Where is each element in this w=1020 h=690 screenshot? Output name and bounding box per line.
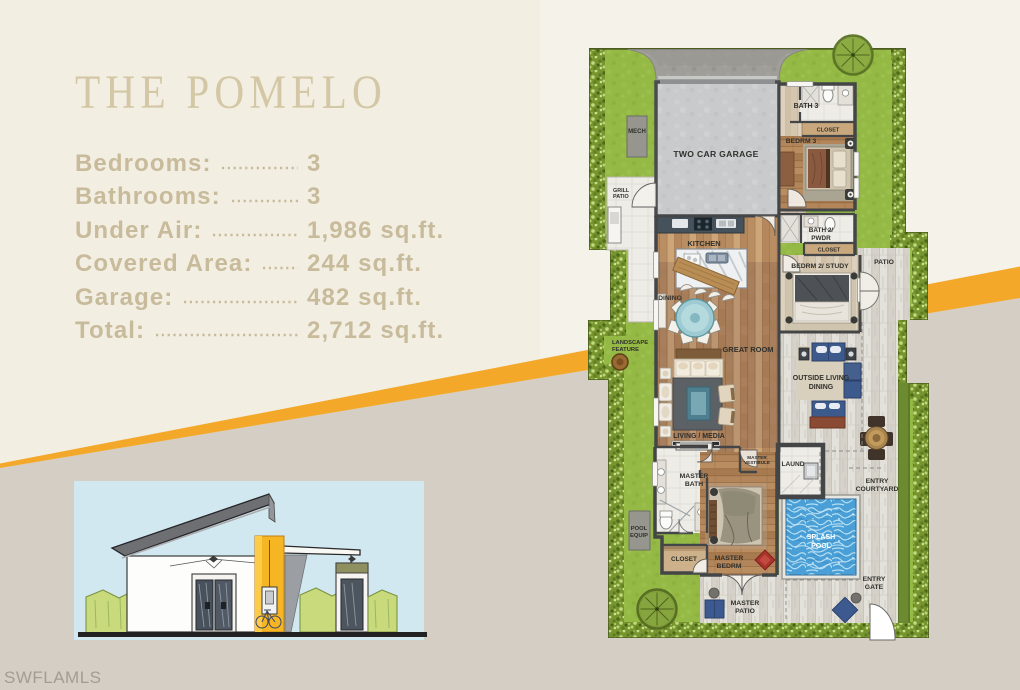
svg-text:CLOSET: CLOSET	[817, 128, 840, 134]
svg-text:BATH 3: BATH 3	[794, 103, 819, 110]
svg-text:3: 3	[307, 183, 321, 210]
svg-text:2,712 sq.ft.: 2,712 sq.ft.	[307, 317, 444, 344]
svg-text:KITCHEN: KITCHEN	[687, 239, 720, 248]
svg-text:SPLASH: SPLASH	[807, 534, 835, 541]
svg-text:ENTRY: ENTRY	[866, 478, 889, 485]
svg-text:PATIO: PATIO	[735, 608, 755, 615]
svg-text:MECH: MECH	[628, 129, 646, 135]
svg-text:ENTRY: ENTRY	[863, 576, 886, 583]
svg-text:SWFLAMLS: SWFLAMLS	[4, 668, 102, 687]
svg-text:Under Air:: Under Air:	[75, 217, 202, 244]
svg-text:BEDRM 3: BEDRM 3	[786, 138, 817, 145]
svg-text:Bedrooms:: Bedrooms:	[75, 150, 212, 177]
svg-text:THE POMELO: THE POMELO	[75, 66, 387, 119]
svg-text:OUTSIDE LIVING: OUTSIDE LIVING	[793, 375, 850, 382]
svg-text:Covered Area:: Covered Area:	[75, 250, 252, 277]
svg-text:PATIO: PATIO	[613, 194, 629, 200]
svg-text:BEDRM 2/ STUDY: BEDRM 2/ STUDY	[791, 263, 849, 270]
svg-text:PWDR: PWDR	[811, 235, 831, 242]
svg-text:LAUND: LAUND	[781, 461, 804, 468]
svg-text:DINING: DINING	[809, 384, 834, 391]
svg-text:244 sq.ft.: 244 sq.ft.	[307, 250, 422, 277]
svg-text:Garage:: Garage:	[75, 284, 173, 311]
svg-text:CLOSET: CLOSET	[818, 248, 841, 254]
svg-text:BEDRM: BEDRM	[717, 563, 742, 570]
svg-text:POOL: POOL	[811, 543, 832, 550]
svg-text:Total:: Total:	[75, 317, 145, 344]
svg-text:PATIO: PATIO	[874, 259, 894, 266]
svg-text:EQUIP: EQUIP	[630, 533, 648, 539]
svg-text:MASTER: MASTER	[680, 473, 709, 480]
svg-text:GATE: GATE	[865, 584, 884, 591]
svg-text:DINING: DINING	[658, 295, 682, 302]
svg-text:CLOSET: CLOSET	[671, 556, 697, 563]
svg-text:Bathrooms:: Bathrooms:	[75, 183, 221, 210]
svg-text:1,986 sq.ft.: 1,986 sq.ft.	[307, 217, 444, 244]
svg-text:482 sq.ft.: 482 sq.ft.	[307, 284, 422, 311]
svg-text:COURTYARD: COURTYARD	[856, 486, 899, 493]
svg-text:TWO CAR GARAGE: TWO CAR GARAGE	[673, 149, 758, 159]
svg-text:MASTER: MASTER	[715, 555, 744, 562]
svg-text:LIVING / MEDIA: LIVING / MEDIA	[673, 433, 725, 440]
svg-text:BATH: BATH	[685, 481, 703, 488]
svg-text:POOL: POOL	[631, 526, 648, 532]
svg-text:VESTIBULE: VESTIBULE	[744, 460, 770, 465]
svg-text:FEATURE: FEATURE	[612, 347, 639, 353]
svg-text:BATH 2/: BATH 2/	[809, 227, 834, 234]
svg-text:GREAT ROOM: GREAT ROOM	[722, 345, 773, 354]
svg-text:3: 3	[307, 150, 321, 177]
svg-text:MASTER: MASTER	[731, 600, 760, 607]
svg-text:LANDSCAPE: LANDSCAPE	[612, 340, 648, 346]
